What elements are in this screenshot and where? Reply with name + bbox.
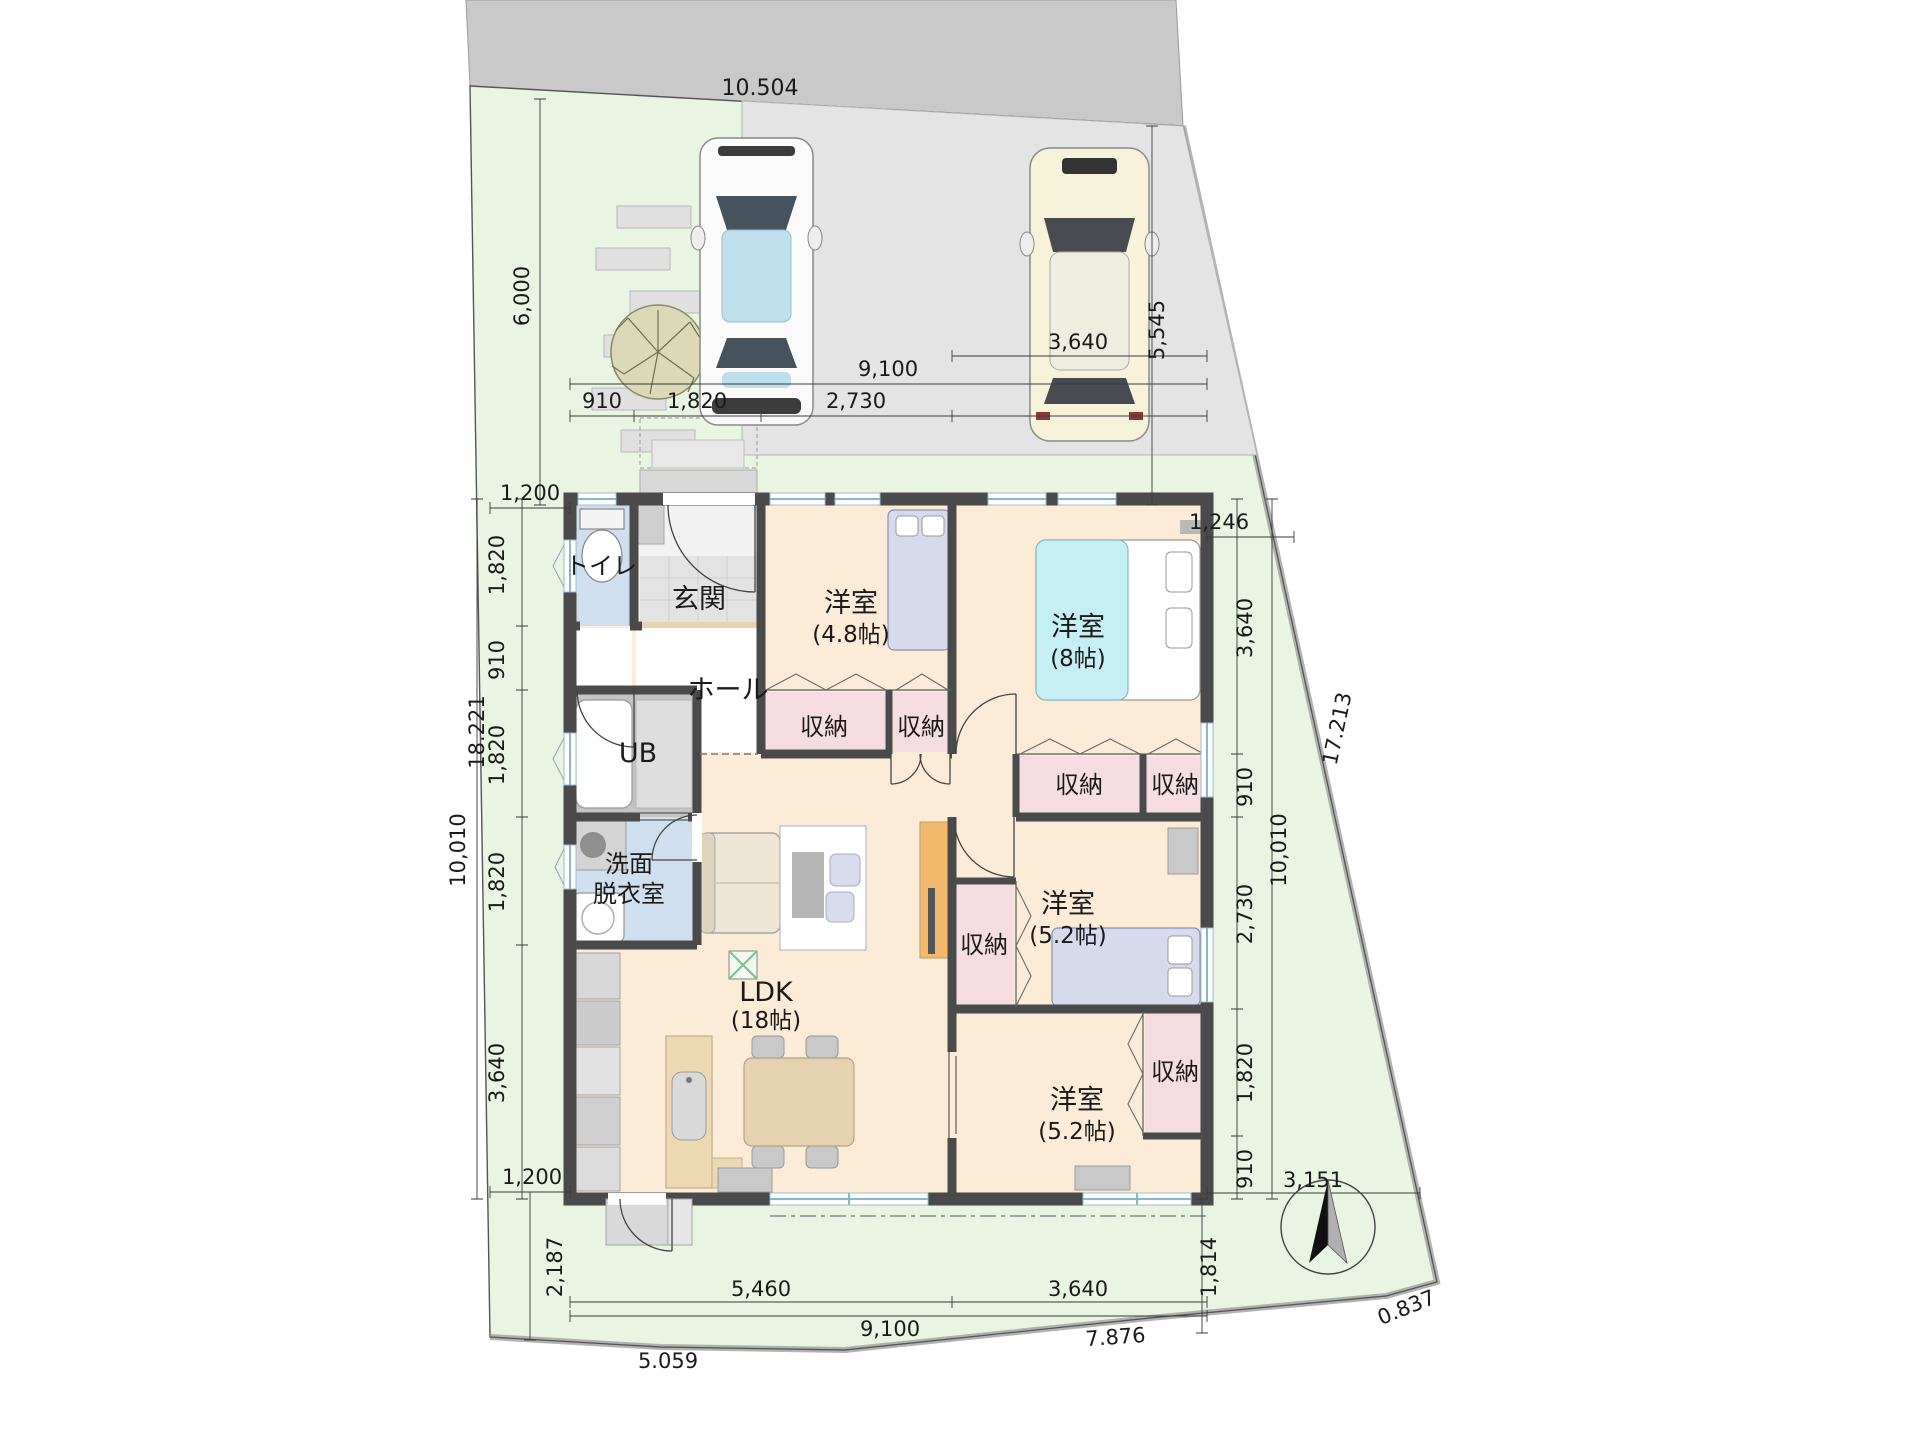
dim-sw-vert: 2,187 (543, 1237, 567, 1297)
room-label-bedroom8: 洋室 (1051, 612, 1105, 643)
dim-bottom-1: 5,460 (731, 1277, 791, 1301)
room-label-storage-1: 収納 (800, 713, 848, 741)
car-2 (1020, 148, 1159, 441)
dim-east-boundary: 17.213 (1318, 690, 1357, 767)
room-label-toilet: トイレ (565, 552, 637, 580)
parking-area (742, 101, 1257, 455)
dim-bottom-overall: 9,100 (860, 1317, 920, 1341)
dim-top-1820: 1,820 (667, 389, 727, 413)
dim-top-overall: 9,100 (858, 357, 918, 381)
dim-road-frontage: 10.504 (722, 76, 799, 101)
room-label-bedroom8-size: (8帖) (1050, 646, 1106, 672)
room-label-ldk: LDK (739, 977, 794, 1008)
dim-right-5: 910 (1233, 1149, 1257, 1189)
tree-icon (611, 305, 705, 399)
dim-se-vert: 1,814 (1197, 1237, 1221, 1297)
dim-left-2: 910 (485, 640, 509, 680)
dim-right-4: 1,820 (1233, 1043, 1257, 1103)
room-label-bedroom52a: 洋室 (1041, 889, 1095, 920)
room-label-bedroom52a-size: (5.2帖) (1029, 923, 1107, 949)
car-1 (691, 138, 822, 425)
room-label-bedroom48-size: (4.8帖) (812, 622, 890, 648)
dim-left-4: 1,820 (485, 852, 509, 912)
dim-ne-gap: 1,246 (1189, 510, 1249, 534)
room-label-entrance: 玄関 (672, 584, 726, 615)
room-label-bedroom52b-size: (5.2帖) (1038, 1119, 1116, 1145)
dim-nw-offset: 1,200 (500, 481, 560, 505)
floor-plan-canvas: 10.504 6,000 5,545 9,100 910 1,820 2,730… (0, 0, 1920, 1440)
dim-left-3: 1,820 (485, 725, 509, 785)
dim-top-stall: 3,640 (1048, 330, 1108, 354)
dim-parking-depth: 5,545 (1145, 300, 1169, 360)
room-label-bedroom52b: 洋室 (1050, 1085, 1104, 1116)
dim-left-1: 1,820 (485, 535, 509, 595)
room-label-storage-4: 収納 (1151, 771, 1199, 799)
room-label-ldk-size: (18帖) (731, 1008, 801, 1034)
dim-top-910: 910 (582, 389, 622, 413)
dim-right-2: 910 (1233, 767, 1257, 807)
dim-right-1: 3,640 (1233, 598, 1257, 658)
dim-garden-depth: 6,000 (510, 266, 534, 326)
dim-boundary-sw: 5.059 (638, 1349, 698, 1373)
dim-sw-offset: 1,200 (502, 1165, 562, 1189)
dim-boundary-s: 7.876 (1085, 1323, 1147, 1351)
room-label-bedroom48: 洋室 (824, 588, 878, 619)
room-label-storage-6: 収納 (1151, 1058, 1199, 1086)
dim-se-gap: 3,151 (1283, 1168, 1343, 1192)
room-label-hall: ホール (688, 675, 769, 706)
dim-right-overall: 10,010 (1267, 813, 1291, 886)
dim-top-2730: 2,730 (826, 389, 886, 413)
dim-bottom-2: 3,640 (1048, 1277, 1108, 1301)
dim-right-3: 2,730 (1233, 884, 1257, 944)
dim-left-5: 3,640 (485, 1043, 509, 1103)
floor-hatch-icon (729, 951, 757, 979)
room-label-washroom-1: 洗面 (605, 850, 653, 878)
room-label-storage-2: 収納 (897, 713, 945, 741)
site-floor-plan: 10.504 6,000 5,545 9,100 910 1,820 2,730… (0, 0, 1920, 1440)
room-label-washroom-2: 脱衣室 (593, 880, 665, 908)
dim-left-overall: 10,010 (446, 813, 470, 886)
room-label-storage-3: 収納 (1055, 771, 1103, 799)
room-label-bath: UB (619, 738, 657, 769)
room-label-storage-5: 収納 (960, 931, 1008, 959)
